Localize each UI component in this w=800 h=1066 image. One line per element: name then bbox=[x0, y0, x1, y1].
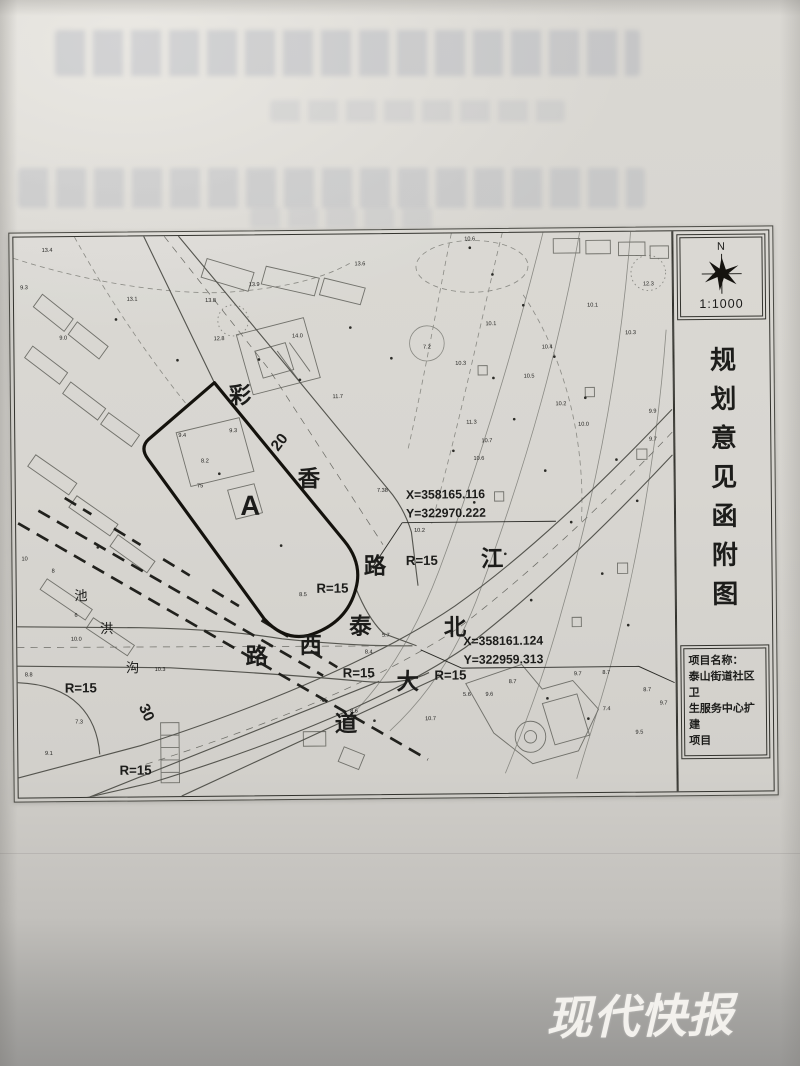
spot-height: 8.7 bbox=[509, 679, 517, 685]
bleedthrough-band bbox=[250, 208, 435, 228]
spot-height: 9.7 bbox=[574, 671, 582, 677]
spot-height: 9.7 bbox=[649, 437, 657, 443]
spot-height: 9.3 bbox=[20, 285, 28, 291]
map-label: R=15 bbox=[434, 667, 467, 682]
map-label: 池 bbox=[74, 588, 87, 603]
map-label: Y=322970.222 bbox=[406, 506, 486, 521]
spot-height: 12.8 bbox=[214, 336, 225, 342]
north-arrow-box: N 1:1000 bbox=[676, 233, 766, 320]
spot-height: 9.7 bbox=[660, 700, 668, 706]
spot-height: 11.7 bbox=[333, 394, 344, 400]
project-name-line: 项目 bbox=[689, 734, 762, 751]
spot-height: 13.9 bbox=[249, 282, 260, 288]
spot-height: 10.6 bbox=[464, 236, 475, 242]
spot-height: 13.6 bbox=[354, 261, 365, 267]
spot-height: 10 bbox=[21, 556, 27, 562]
spot-height: 12.3 bbox=[643, 281, 654, 287]
spot-height: 10.2 bbox=[414, 528, 425, 534]
spot-height: 8.8 bbox=[25, 672, 33, 678]
map-label: 路 bbox=[364, 552, 387, 578]
spot-height: 9.0 bbox=[59, 336, 67, 342]
spot-height: 8 bbox=[52, 569, 55, 575]
map-label: 30 bbox=[135, 701, 157, 724]
map-label: X=358165.116 bbox=[406, 487, 485, 502]
spot-height: 8.2 bbox=[201, 458, 209, 464]
spot-height: 10.0 bbox=[578, 422, 589, 428]
map-frame: 彩香路泰西路江北大道A池洪沟R=15R=15R=15R=15R=15R=1520… bbox=[12, 229, 774, 798]
map-label: 路 bbox=[245, 643, 268, 669]
spot-height: 10.6 bbox=[473, 456, 484, 462]
spot-height: 8.6 bbox=[350, 709, 358, 715]
map-sheet: 彩香路泰西路江北大道A池洪沟R=15R=15R=15R=15R=15R=1520… bbox=[8, 225, 778, 802]
spot-height: 9.6 bbox=[485, 692, 493, 698]
spot-height: 10.7 bbox=[425, 716, 436, 722]
map-label: Y=322959.313 bbox=[463, 652, 543, 667]
spot-height: 8.4 bbox=[365, 649, 373, 655]
map-scale: 1:1000 bbox=[699, 297, 743, 311]
newspaper-watermark: 现代快报 bbox=[545, 978, 800, 1048]
spot-height: 11.3 bbox=[466, 420, 477, 426]
legend-panel: N 1:1000 规划意见函附图 项目名称： bbox=[672, 230, 773, 791]
map-drawing: 彩香路泰西路江北大道A池洪沟R=15R=15R=15R=15R=15R=1520… bbox=[13, 231, 676, 797]
spot-height: 9.1 bbox=[45, 751, 53, 757]
map-label: R=15 bbox=[343, 665, 376, 680]
map-label: 洪 bbox=[100, 621, 113, 636]
spot-height: 5.6 bbox=[463, 692, 471, 698]
project-name-box: 项目名称： 泰山街道社区卫 生服务中心扩建 项目 bbox=[680, 645, 770, 759]
spot-height: 5.7 bbox=[382, 633, 390, 639]
compass-rose-icon bbox=[698, 253, 744, 295]
map-label: R=15 bbox=[316, 580, 349, 595]
map-label: 泰 bbox=[348, 614, 372, 639]
spot-height: 8.5 bbox=[299, 592, 307, 598]
spot-height: 9.4 bbox=[178, 433, 186, 439]
spot-height: 10.0 bbox=[71, 637, 82, 643]
map-label: 大 bbox=[396, 669, 419, 694]
spot-height: 10.7 bbox=[481, 438, 492, 444]
spot-height: 9.5 bbox=[636, 730, 644, 736]
spot-height: 10.1 bbox=[587, 303, 598, 309]
spot-height: 10.1 bbox=[485, 321, 496, 327]
map-label: 沟 bbox=[126, 660, 139, 675]
map-label: 香 bbox=[298, 466, 321, 491]
bleedthrough-band bbox=[55, 30, 640, 76]
spot-height: 7.3 bbox=[75, 719, 83, 725]
site-plan-map: 彩香路泰西路江北大道A池洪沟R=15R=15R=15R=15R=15R=1520… bbox=[13, 231, 677, 797]
spot-height: 8.7 bbox=[643, 687, 651, 693]
project-name-line: 泰山街道社区卫 bbox=[689, 670, 762, 703]
project-name-line: 生服务中心扩建 bbox=[689, 702, 762, 735]
map-label: R=15 bbox=[406, 553, 439, 568]
spot-height: 7.2 bbox=[423, 345, 431, 351]
map-label: 西 bbox=[299, 633, 322, 658]
north-label: N bbox=[717, 242, 725, 253]
spot-height: 13.8 bbox=[205, 298, 216, 304]
map-label: 彩 bbox=[228, 383, 252, 408]
spot-height: 75 bbox=[197, 483, 203, 489]
bleedthrough-band bbox=[270, 100, 565, 122]
photo-of-planning-document: 彩香路泰西路江北大道A池洪沟R=15R=15R=15R=15R=15R=1520… bbox=[0, 0, 800, 1066]
spot-height: 10.3 bbox=[155, 667, 166, 673]
map-label: A bbox=[240, 490, 260, 521]
map-label: R=15 bbox=[120, 762, 153, 777]
spot-height: 10.4 bbox=[542, 344, 553, 350]
spot-height: 7.38 bbox=[377, 488, 388, 494]
spot-height: 7.4 bbox=[603, 706, 611, 712]
spot-height: 13.4 bbox=[42, 248, 53, 254]
spot-height: 9.3 bbox=[229, 428, 237, 434]
drawing-title: 规划意见函附图 bbox=[674, 322, 772, 642]
spot-height: 9.9 bbox=[649, 409, 657, 415]
spot-height: 13.1 bbox=[127, 297, 138, 303]
spot-height: 8.7 bbox=[602, 670, 610, 676]
spot-height: 10.2 bbox=[555, 401, 566, 407]
paper-crease bbox=[0, 853, 800, 854]
spot-height: 10.3 bbox=[625, 330, 636, 336]
spot-height: 10.5 bbox=[524, 374, 535, 380]
project-heading: 项目名称： bbox=[688, 654, 761, 671]
bleedthrough-band bbox=[18, 168, 645, 208]
spot-height: 10.3 bbox=[455, 361, 466, 367]
map-label: X=358161.124 bbox=[463, 633, 543, 648]
spot-height: 6 bbox=[74, 613, 77, 619]
map-label: R=15 bbox=[65, 680, 98, 695]
spot-height: 14.0 bbox=[292, 333, 303, 339]
map-label: 江 bbox=[481, 546, 504, 571]
